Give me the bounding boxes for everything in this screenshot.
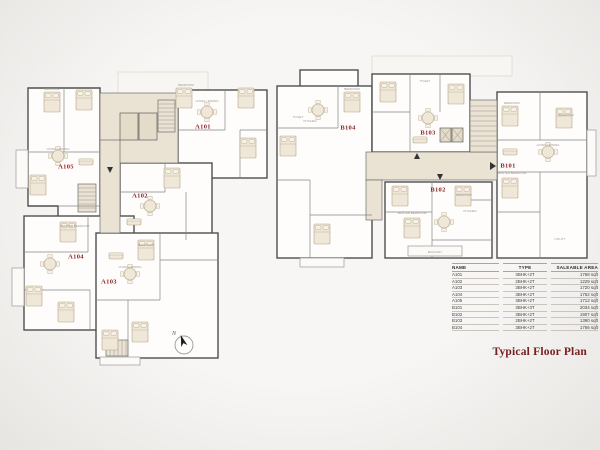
unit-label-a102: A102 [132,193,148,200]
table-cell: 3BHK+3T [503,305,547,312]
table-cell: 3BHK+2T [503,325,547,332]
svg-text:KITCHEN: KITCHEN [463,209,476,213]
svg-text:BEDROOM: BEDROOM [344,87,360,91]
unit-label-a103: A103 [101,279,117,286]
table-cell: 2BHK+2T [503,279,547,286]
table-cell: A104 [452,292,499,299]
svg-text:BEDROOM: BEDROOM [558,113,574,117]
svg-text:LIVING / DINING: LIVING / DINING [47,147,71,151]
unit-area-table: NAME A101 A102 A103 A104 A105 B101 B102 … [452,263,598,331]
table-cell: 3BHK+2T [503,285,547,292]
svg-text:LIVING / DINING: LIVING / DINING [537,143,561,147]
svg-text:BEDROOM: BEDROOM [44,87,60,91]
svg-text:UTILITY: UTILITY [554,237,565,241]
unit-label-a105: A105 [58,164,74,171]
svg-text:MASTER BEDROOM: MASTER BEDROOM [61,224,90,228]
table-cell: B104 [452,325,499,332]
table-cell: 1768 sqft [551,272,598,279]
svg-text:KITCHEN: KITCHEN [303,119,316,123]
column-header-area: SALEABLE AREA [551,263,598,272]
unit-label-a101: A101 [195,124,211,131]
svg-text:MASTER BEDROOM: MASTER BEDROOM [498,171,527,175]
table-column-area: SALEABLE AREA 1768 sqft 1229 sqft 1720 s… [551,263,598,331]
table-cell: 2034 sqft [551,305,598,312]
page-title: Typical Floor Plan [492,346,587,358]
table-cell: 1752 sqft [551,292,598,299]
table-cell: 1720 sqft [551,285,598,292]
unit-label-a104: A104 [68,254,84,261]
column-header-type: TYPE [503,263,547,272]
svg-text:BEDROOM: BEDROOM [456,193,472,197]
svg-text:MASTER BEDROOM: MASTER BEDROOM [398,211,427,215]
table-cell: 3BHK+2T [503,312,547,319]
table-cell: A101 [452,272,499,279]
table-cell: B103 [452,318,499,325]
table-column-type: TYPE 3BHK+2T 2BHK+2T 3BHK+2T 3BHK+2T 3BH… [503,263,547,331]
table-column-name: NAME A101 A102 A103 A104 A105 B101 B102 … [452,263,499,331]
table-cell: B101 [452,305,499,312]
unit-label-b103: B103 [420,130,435,137]
table-cell: 2BHK+2T [503,318,547,325]
floor-plan-canvas: BEDROOM BEDROOM BEDROOM BEDROOM BEDROOM … [0,0,600,450]
svg-text:BEDROOM: BEDROOM [504,101,520,105]
svg-text:TOILET: TOILET [420,79,431,83]
svg-text:LIVING / DINING: LIVING / DINING [196,99,220,103]
svg-text:TOILET: TOILET [293,115,304,119]
table-cell: 3BHK+2T [503,298,547,305]
svg-text:BEDROOM: BEDROOM [178,83,194,87]
table-cell: A102 [452,279,499,286]
table-cell: 1712 sqft [551,298,598,305]
table-cell: A103 [452,285,499,292]
svg-text:LIVING / DINING: LIVING / DINING [119,265,143,269]
floor-plan-drawing: BEDROOM BEDROOM BEDROOM BEDROOM BEDROOM … [0,0,600,450]
table-cell: 1229 sqft [551,279,598,286]
table-cell: 3BHK+2T [503,272,547,279]
table-cell: B102 [452,312,499,319]
unit-label-b104: B104 [340,125,355,132]
table-cell: 1907 sqft [551,312,598,319]
svg-text:BALCONY: BALCONY [428,250,442,254]
column-header-name: NAME [452,263,499,272]
table-cell: 1766 sqft [551,325,598,332]
table-cell: A105 [452,298,499,305]
table-cell: 1390 sqft [551,318,598,325]
unit-label-b102: B102 [430,187,445,194]
table-cell: 3BHK+2T [503,292,547,299]
svg-text:BEDROOM: BEDROOM [138,243,154,247]
unit-label-b101: B101 [500,163,515,170]
